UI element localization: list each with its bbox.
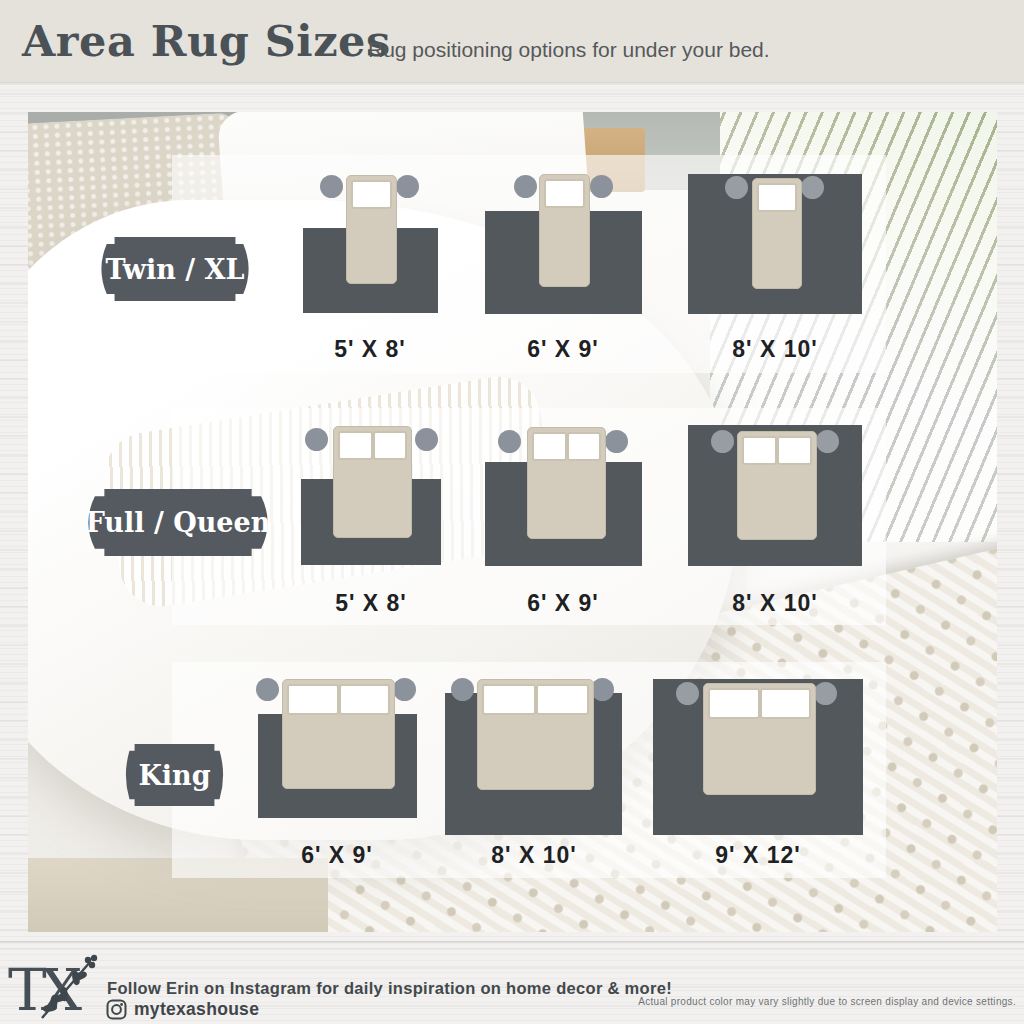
nightstand-icon	[591, 678, 614, 701]
wood-groove	[0, 941, 1024, 944]
row-badge-king: King	[123, 744, 226, 806]
pillow-icon	[757, 183, 797, 212]
pillow-icon	[544, 179, 585, 208]
pillow-icon	[567, 432, 602, 461]
pillow-icon	[373, 431, 408, 460]
row-badge-full-queen: Full / Queen	[83, 489, 273, 556]
bed-icon	[737, 431, 817, 540]
pillow-icon	[708, 688, 760, 719]
size-label: 6' X 9'	[527, 336, 599, 363]
size-label: 8' X 10'	[491, 842, 576, 869]
bed-icon	[477, 679, 594, 790]
nightstand-icon	[393, 678, 416, 701]
bed-icon	[703, 683, 816, 795]
pillow-icon	[532, 432, 567, 461]
pillow-icon	[777, 436, 812, 465]
row-badge-label: Full / Queen	[86, 507, 271, 538]
size-label: 6' X 9'	[301, 842, 373, 869]
pillow-icon	[536, 684, 590, 715]
nightstand-icon	[514, 175, 537, 198]
wood-groove	[0, 82, 1024, 85]
size-label: 6' X 9'	[527, 590, 599, 617]
instagram-handle-row: mytexashouse	[106, 999, 259, 1020]
nightstand-icon	[320, 175, 343, 198]
logo-letters: TX	[8, 956, 83, 1022]
size-label: 5' X 8'	[334, 336, 406, 363]
nightstand-icon	[451, 678, 474, 701]
bed-icon	[346, 175, 397, 284]
nightstand-icon	[256, 678, 279, 701]
pillow-icon	[287, 684, 339, 715]
nightstand-icon	[498, 430, 521, 453]
nightstand-icon	[396, 175, 419, 198]
pillow-icon	[338, 431, 373, 460]
bed-icon	[539, 174, 590, 287]
size-label: 8' X 10'	[732, 590, 817, 617]
nightstand-icon	[814, 682, 837, 705]
pillow-icon	[482, 684, 536, 715]
pillow-icon	[760, 688, 812, 719]
nightstand-icon	[816, 430, 839, 453]
instagram-handle: mytexashouse	[134, 999, 259, 1020]
pillow-icon	[742, 436, 777, 465]
size-label: 5' X 8'	[335, 590, 407, 617]
row-badge-label: King	[138, 760, 210, 791]
nightstand-icon	[676, 682, 699, 705]
nightstand-icon	[415, 428, 438, 451]
nightstand-icon	[725, 176, 748, 199]
footer-tagline: Follow Erin on Instagram for daily inspi…	[107, 979, 672, 998]
page-title: Area Rug Sizes	[22, 16, 391, 66]
size-label: 8' X 10'	[732, 336, 817, 363]
pillow-icon	[351, 180, 392, 209]
row-badge-label: Twin / XL	[106, 254, 245, 285]
tx-monogram-logo: TX	[8, 952, 110, 1022]
bed-icon	[527, 427, 606, 539]
nightstand-icon	[605, 430, 628, 453]
page-subtitle: Rug positioning options for under your b…	[368, 38, 770, 62]
pillow-icon	[339, 684, 391, 715]
color-disclaimer: Actual product color may vary slightly d…	[638, 996, 1016, 1007]
bed-icon	[752, 178, 802, 289]
bed-icon	[333, 426, 412, 538]
bed-icon	[282, 679, 395, 789]
instagram-icon	[106, 999, 127, 1020]
nightstand-icon	[801, 176, 824, 199]
size-label: 9' X 12'	[715, 842, 800, 869]
row-badge-twin-xl: Twin / XL	[97, 237, 253, 301]
nightstand-icon	[590, 175, 613, 198]
nightstand-icon	[305, 428, 328, 451]
rug-size-infographic: Area Rug Sizes Rug positioning options f…	[0, 0, 1024, 1024]
nightstand-icon	[711, 430, 734, 453]
